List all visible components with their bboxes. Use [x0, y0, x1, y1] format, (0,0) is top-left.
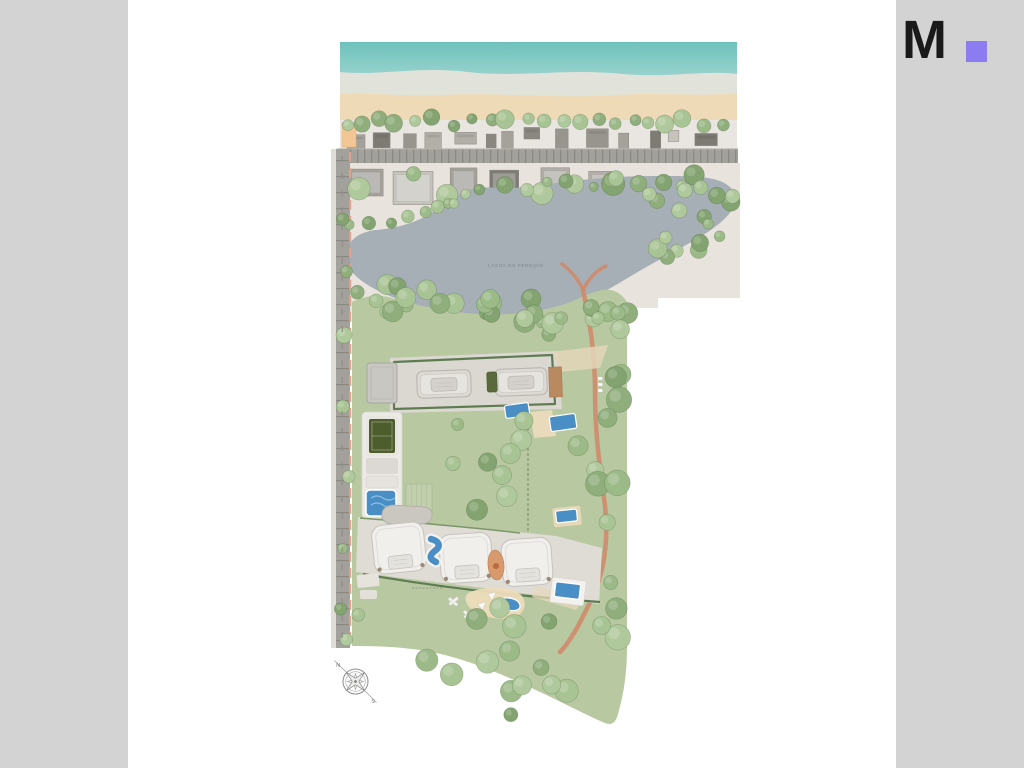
service-pad: [356, 573, 379, 588]
roof-garden: [487, 372, 498, 392]
lagoon-label: LAGOA DO PEREQUÊ: [488, 263, 544, 268]
sun-loungers: [598, 377, 603, 392]
page: M: [0, 0, 1024, 768]
compass-south-label: S: [371, 699, 375, 705]
site-plan-map: LAGOA DO PEREQUÊ: [0, 0, 1024, 768]
compass-north-label: N: [336, 663, 340, 669]
multisport-court: [367, 363, 397, 403]
beach-road: [337, 149, 738, 163]
clubhouse: [382, 505, 432, 524]
pool-ne: [555, 509, 577, 523]
terrace-pad: [366, 476, 398, 488]
compass-rose: N S: [335, 661, 377, 706]
road-dashes: [342, 156, 343, 638]
pool-se: [554, 582, 581, 600]
leisure-pool-b: [549, 413, 577, 431]
orange-garden-center: [493, 563, 499, 569]
wood-deck: [548, 367, 562, 397]
service-pad: [360, 590, 377, 599]
beach-road-edge: [337, 148, 738, 149]
garden-pad: [366, 458, 398, 474]
